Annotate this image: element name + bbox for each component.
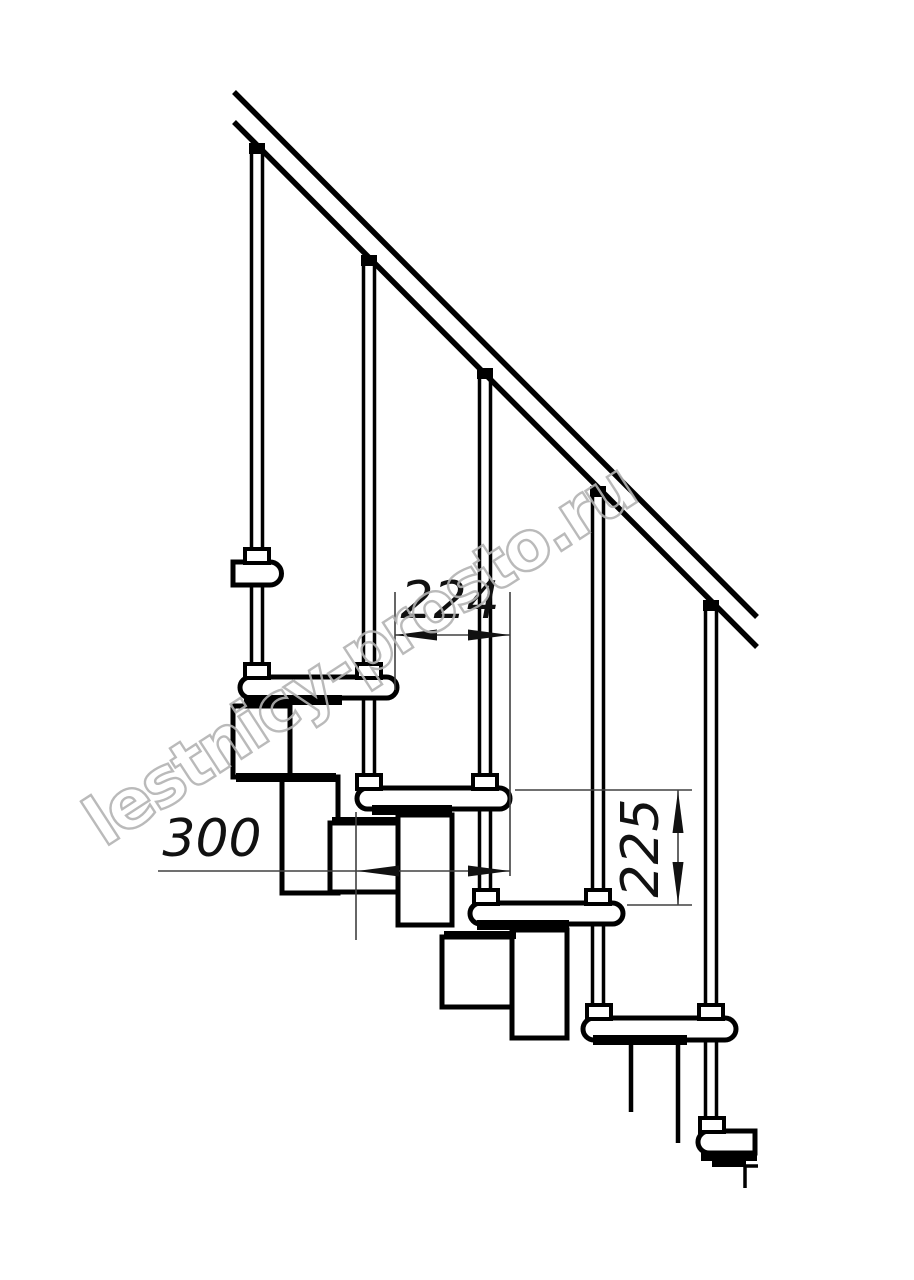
staircase-technical-drawing: 224 300 225 lestnicy-prosto.ru	[0, 0, 914, 1280]
drawing-background	[0, 0, 914, 1280]
tread-shadow	[593, 1035, 687, 1045]
dimension-225-label: 225	[611, 798, 671, 897]
baluster-collar	[357, 775, 381, 789]
baluster-collar	[473, 775, 497, 789]
baluster-collar	[245, 549, 269, 563]
baluster-collar	[700, 1118, 724, 1132]
tread-shadow	[701, 1151, 757, 1161]
baluster-cap	[249, 143, 265, 154]
stringer-module-box	[398, 815, 452, 925]
baluster-collar	[587, 1005, 611, 1019]
baluster-cap	[477, 368, 493, 379]
baluster-cap	[703, 600, 719, 611]
stringer-flange	[332, 817, 398, 825]
tread-1	[233, 562, 282, 585]
baluster-collar	[474, 890, 498, 904]
stringer-flange	[236, 773, 336, 782]
stringer-flange	[444, 931, 516, 939]
baluster-collar	[699, 1005, 723, 1019]
stringer-module-box	[442, 937, 518, 1007]
tread-shadow	[477, 920, 569, 930]
baluster-collar	[586, 890, 610, 904]
stringer-module-box	[330, 823, 400, 892]
baluster-cap	[361, 255, 377, 266]
tread-shadow	[372, 805, 452, 815]
tread-6	[698, 1131, 755, 1153]
stringer-module-box	[512, 930, 567, 1038]
